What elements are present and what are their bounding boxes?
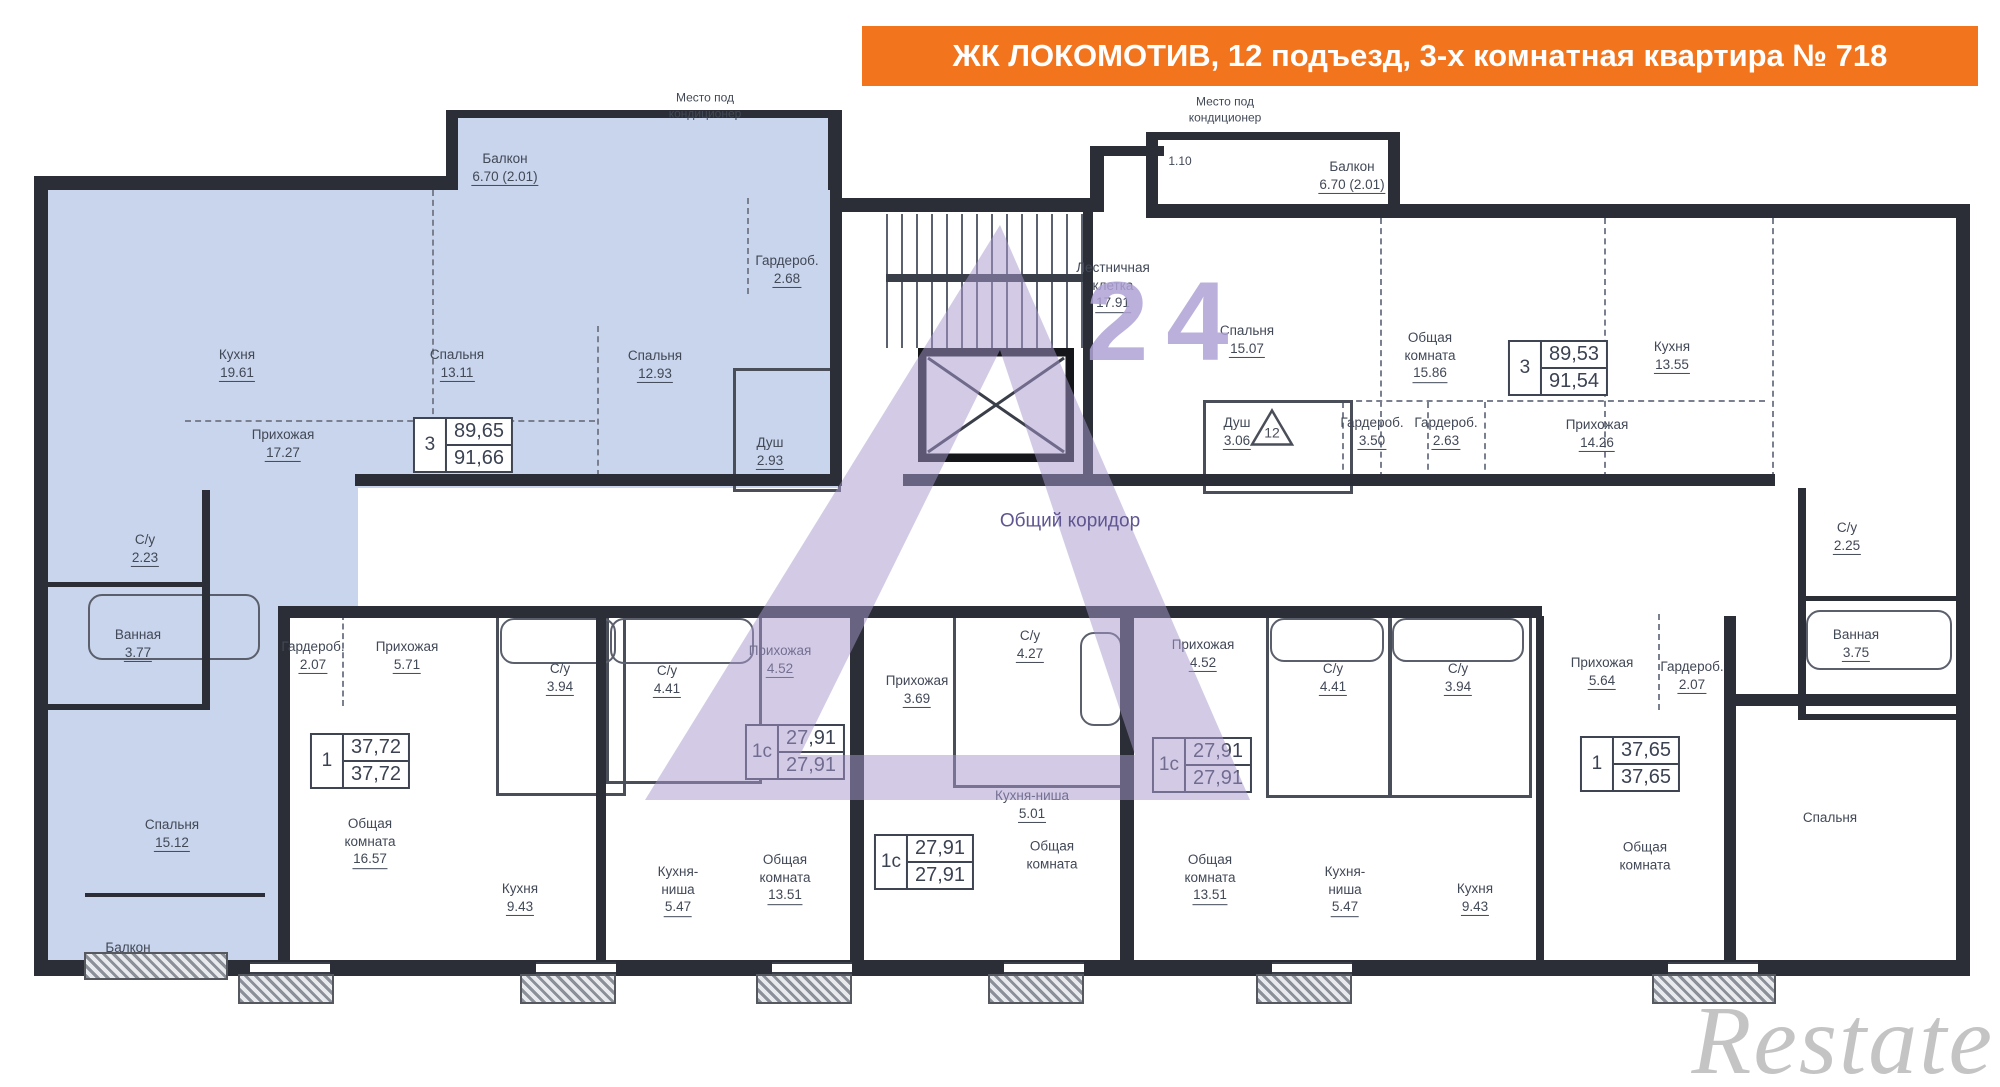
- room-area: 9.43: [1461, 898, 1489, 917]
- window: [1668, 962, 1758, 974]
- room-name: Гардероб.: [1340, 415, 1403, 430]
- room-name: Спальня: [1803, 810, 1857, 825]
- room-area: 3.06: [1223, 432, 1251, 451]
- room-name: Кухня: [219, 347, 255, 362]
- balcony-pier: [1256, 974, 1352, 1004]
- room-label: Душ2.93: [756, 434, 784, 470]
- room-label: Прихожая5.64: [1571, 654, 1634, 690]
- rooms-count: 1: [1582, 738, 1612, 790]
- room-area: 2.07: [299, 656, 327, 675]
- room-area: 2.25: [1833, 537, 1861, 556]
- room-name: С/у: [1448, 661, 1468, 676]
- wall: [1804, 714, 1958, 720]
- room-name: С/у: [1837, 520, 1857, 535]
- room-label: Лестничная клетка17.91: [1076, 259, 1150, 313]
- total-area: 37,72: [344, 762, 408, 787]
- room-label: Спальня12.93: [628, 347, 682, 383]
- apartment-spec-box: 137,6537,65: [1580, 736, 1680, 792]
- total-area: 27,91: [1186, 766, 1250, 791]
- wall: [830, 190, 842, 486]
- room-label: Кухня- ниша5.47: [658, 863, 699, 917]
- room-label: Прихожая4.52: [749, 642, 812, 678]
- room-name: Прихожая: [1566, 417, 1629, 432]
- room-label: Прихожая4.52: [1172, 636, 1235, 672]
- rooms-count: 1с: [1154, 739, 1184, 791]
- room-name: Ванная: [1833, 627, 1879, 642]
- total-area: 91,66: [447, 446, 511, 471]
- wall: [1156, 204, 1970, 218]
- room-label: Общая комната13.51: [759, 851, 810, 905]
- room-area: 17.91: [1095, 294, 1131, 313]
- room-area: 3.50: [1358, 432, 1386, 451]
- room-area: 4.52: [1189, 654, 1217, 673]
- bathtub: [1080, 632, 1122, 726]
- room-area: 15.12: [154, 834, 190, 853]
- room-name: Спальня: [628, 348, 682, 363]
- room-label: Общая комната16.57: [344, 815, 395, 869]
- highlight-left-bottom: [40, 610, 280, 966]
- room-name: Душ: [756, 435, 783, 450]
- room-area: 2.07: [1678, 676, 1706, 695]
- apartment-spec-box: 1с27,9127,91: [1152, 737, 1252, 793]
- room-area: 3.75: [1842, 644, 1870, 663]
- room-label: Общая комната13.51: [1184, 851, 1235, 905]
- living-area: 37,72: [344, 735, 408, 762]
- living-area: 37,65: [1614, 738, 1678, 765]
- window: [536, 962, 616, 974]
- room-name: С/у: [657, 663, 677, 678]
- living-area: 27,91: [779, 726, 843, 753]
- room-label: Общая комната: [1026, 837, 1077, 872]
- wall: [355, 474, 838, 486]
- rooms-count: 1с: [747, 726, 777, 778]
- room-area: 5.71: [393, 656, 421, 675]
- room-label: Гардероб.2.07: [1660, 658, 1723, 694]
- room-label: Ванная3.75: [1833, 626, 1879, 662]
- room-name: Общая комната: [1619, 839, 1670, 872]
- room-area: 5.64: [1588, 672, 1616, 691]
- total-area: 37,65: [1614, 765, 1678, 790]
- room-label: Спальня: [1803, 809, 1857, 827]
- room-label: Прихожая14.26: [1566, 416, 1629, 452]
- room-area: 2.68: [773, 270, 801, 289]
- room-name: Спальня: [1220, 323, 1274, 338]
- room-label: Прихожая5.71: [376, 638, 439, 674]
- room-label: С/у2.25: [1833, 519, 1861, 555]
- rooms-count: 1с: [876, 836, 906, 888]
- room-name: Спальня: [430, 347, 484, 362]
- wall: [903, 474, 1775, 486]
- floor-plan-page: 24 Restate ЖК ЛОКОМОТИВ, 12 подъезд, 3-х…: [0, 0, 2000, 1087]
- room-label: Кухня-ниша5.01: [995, 787, 1069, 823]
- room-name: Прихожая: [252, 427, 315, 442]
- room-label: Общий коридор: [1000, 510, 1140, 535]
- room-label: Спальня15.12: [145, 816, 199, 852]
- room-label: С/у3.94: [1444, 660, 1472, 696]
- room-label: Кухня9.43: [502, 880, 538, 916]
- wall: [596, 616, 606, 962]
- wall: [838, 198, 1096, 212]
- room-name: Общий коридор: [1000, 511, 1140, 532]
- bathtub: [610, 618, 754, 664]
- room-label: Балкон6.70 (2.01): [1318, 158, 1385, 194]
- rooms-count: 3: [1510, 342, 1540, 394]
- triangle-marker: 12: [1249, 408, 1295, 453]
- room-label: Прихожая17.27: [252, 426, 315, 462]
- room-area: 2.63: [1432, 432, 1460, 451]
- room-name: Прихожая: [886, 673, 949, 688]
- room-label: Место под кондиционер: [669, 90, 742, 121]
- room-name: Кухня: [1457, 881, 1493, 896]
- wall: [1724, 616, 1736, 962]
- room-name: Место под кондиционер: [1189, 94, 1262, 124]
- room-label: Гардероб.2.07: [281, 638, 344, 674]
- room-name: Общая комната: [1184, 852, 1235, 885]
- balcony-pier: [988, 974, 1084, 1004]
- room-name: С/у: [135, 532, 155, 547]
- room-label: С/у3.94: [546, 660, 574, 696]
- room-area: 2.23: [131, 549, 159, 568]
- room-label: С/у4.41: [1319, 660, 1347, 696]
- room-label: Общая комната: [1619, 838, 1670, 873]
- room-label: Общая комната15.86: [1404, 329, 1455, 383]
- partition: [597, 326, 599, 476]
- room-name: Ванная: [115, 627, 161, 642]
- partition: [432, 190, 434, 424]
- room-name: С/у: [550, 661, 570, 676]
- room-label: Душ3.06: [1223, 414, 1251, 450]
- room-area: 6.70 (2.01): [1318, 176, 1385, 195]
- room-area: 13.51: [767, 886, 803, 905]
- wall: [34, 176, 458, 190]
- apartment-spec-box: 137,7237,72: [310, 733, 410, 789]
- wall: [1724, 694, 1966, 706]
- room-area: 15.07: [1229, 340, 1265, 359]
- room-name: Кухня-ниша: [995, 788, 1069, 803]
- wall: [278, 606, 1542, 618]
- stair-landing: [886, 274, 1084, 282]
- room-name: Общая комната: [1404, 330, 1455, 363]
- room-name: Балкон: [105, 940, 150, 955]
- room-area: 5.47: [664, 898, 692, 917]
- window: [1272, 962, 1352, 974]
- room-label: Спальня13.11: [430, 346, 484, 382]
- room-label: Место под кондиционер: [1189, 94, 1262, 125]
- wall: [828, 110, 842, 190]
- banner-text: ЖК ЛОКОМОТИВ, 12 подъезд, 3-х комнатная …: [953, 38, 1888, 74]
- room-name: Гардероб.: [281, 639, 344, 654]
- room-name: Душ: [1223, 415, 1250, 430]
- balcony-pier: [756, 974, 852, 1004]
- room-name: Прихожая: [1172, 637, 1235, 652]
- wall: [450, 110, 840, 118]
- rooms-count: 3: [415, 419, 445, 471]
- room-area: 3.69: [903, 690, 931, 709]
- room-area: 2.93: [756, 452, 784, 471]
- room-area: 9.43: [506, 898, 534, 917]
- room-area: 4.27: [1016, 645, 1044, 664]
- room-name: Общая комната: [759, 852, 810, 885]
- room-label: Балкон6.70 (2.01): [471, 150, 538, 186]
- room-name: Балкон: [1329, 159, 1374, 174]
- living-area: 89,65: [447, 419, 511, 446]
- wall: [1536, 616, 1544, 962]
- room-area: 13.11: [440, 364, 475, 383]
- room-area: 16.57: [352, 850, 388, 869]
- wall: [1083, 212, 1093, 486]
- room-area: 13.55: [1654, 356, 1690, 375]
- room-area: 17.27: [265, 444, 301, 463]
- wall: [34, 176, 48, 976]
- room-name: 1.10: [1168, 154, 1191, 168]
- room-name: Прихожая: [749, 643, 812, 658]
- room-name: Гардероб.: [1660, 659, 1723, 674]
- room-label: Гардероб.3.50: [1340, 414, 1403, 450]
- room-name: Кухня: [1654, 339, 1690, 354]
- room-area: 5.01: [1018, 805, 1046, 824]
- room-label: Кухня- ниша5.47: [1325, 863, 1366, 917]
- room-area: 5.47: [1331, 898, 1359, 917]
- wall: [46, 582, 206, 587]
- apartment-spec-box: 1с27,9127,91: [874, 834, 974, 890]
- living-area: 27,91: [908, 836, 972, 863]
- wall: [1120, 616, 1134, 962]
- room-label: Ванная3.77: [115, 626, 161, 662]
- room-name: Кухня: [502, 881, 538, 896]
- room-name: Кухня- ниша: [658, 864, 699, 897]
- room-label: Гардероб.2.63: [1414, 414, 1477, 450]
- room-label: Кухня9.43: [1457, 880, 1493, 916]
- room-name: Спальня: [145, 817, 199, 832]
- room-area: 3.94: [546, 678, 574, 697]
- room-label: Спальня15.07: [1220, 322, 1274, 358]
- room-name: С/у: [1323, 661, 1343, 676]
- elevator-shaft: [918, 348, 1074, 462]
- room-name: Прихожая: [1571, 655, 1634, 670]
- room-label: Кухня19.61: [219, 346, 255, 382]
- marker-text: 12: [1264, 425, 1280, 441]
- room-label: Гардероб.2.68: [755, 252, 818, 288]
- room-area: 15.86: [1412, 364, 1448, 383]
- balcony-pier: [520, 974, 616, 1004]
- wall: [202, 490, 210, 708]
- wall: [85, 893, 265, 897]
- title-banner: ЖК ЛОКОМОТИВ, 12 подъезд, 3-х комнатная …: [862, 26, 1978, 86]
- living-area: 27,91: [1186, 739, 1250, 766]
- window: [772, 962, 852, 974]
- wall: [1956, 204, 1970, 976]
- living-area: 89,53: [1542, 342, 1606, 369]
- bathtub: [1270, 618, 1384, 662]
- room-name: Общая комната: [1026, 838, 1077, 871]
- total-area: 27,91: [779, 753, 843, 778]
- partition: [1772, 218, 1774, 478]
- wall: [850, 616, 864, 962]
- partition: [185, 420, 595, 422]
- room-area: 4.52: [766, 660, 794, 679]
- room-name: Гардероб.: [1414, 415, 1477, 430]
- highlight-left-mid: [40, 488, 358, 610]
- room-name: Общая комната: [344, 816, 395, 849]
- room-name: Место под кондиционер: [669, 90, 742, 120]
- room-area: 4.41: [1319, 678, 1347, 697]
- room-label: Кухня13.55: [1654, 338, 1690, 374]
- bathtub: [1392, 618, 1524, 662]
- room-area: 3.94: [1444, 678, 1472, 697]
- room-area: 13.51: [1192, 886, 1228, 905]
- room-name: С/у: [1020, 628, 1040, 643]
- balcony-pier: [238, 974, 334, 1004]
- room-label: С/у4.27: [1016, 627, 1044, 663]
- window: [1004, 962, 1084, 974]
- room-area: 4.41: [653, 680, 681, 699]
- room-label: 1.10: [1168, 154, 1191, 170]
- partition: [747, 198, 749, 294]
- room-area: 3.77: [124, 644, 152, 663]
- room-label: Прихожая3.69: [886, 672, 949, 708]
- room-area: 14.26: [1579, 434, 1615, 453]
- window: [250, 962, 330, 974]
- total-area: 27,91: [908, 863, 972, 888]
- room-label: С/у4.41: [653, 662, 681, 698]
- apartment-spec-box: 389,5391,54: [1508, 340, 1608, 396]
- room-name: Прихожая: [376, 639, 439, 654]
- apartment-spec-box: 389,6591,66: [413, 417, 513, 473]
- apartment-spec-box: 1с27,9127,91: [745, 724, 845, 780]
- wall: [1798, 488, 1806, 720]
- room-name: Гардероб.: [755, 253, 818, 268]
- room-label: Балкон: [105, 939, 150, 957]
- room-area: 12.93: [637, 365, 673, 384]
- room-label: С/у2.23: [131, 531, 159, 567]
- wall: [1152, 132, 1400, 140]
- wall: [446, 110, 458, 190]
- wall: [1804, 596, 1958, 601]
- room-name: Балкон: [482, 151, 527, 166]
- room-area: 19.61: [219, 364, 255, 383]
- room-name: Кухня- ниша: [1325, 864, 1366, 897]
- rooms-count: 1: [312, 735, 342, 787]
- room-area: 6.70 (2.01): [471, 168, 538, 187]
- wall: [46, 704, 210, 710]
- total-area: 91,54: [1542, 369, 1606, 394]
- balcony-pier: [1652, 974, 1776, 1004]
- bathtub: [88, 594, 260, 660]
- partition: [1484, 402, 1486, 480]
- room-name: Лестничная клетка: [1076, 260, 1150, 293]
